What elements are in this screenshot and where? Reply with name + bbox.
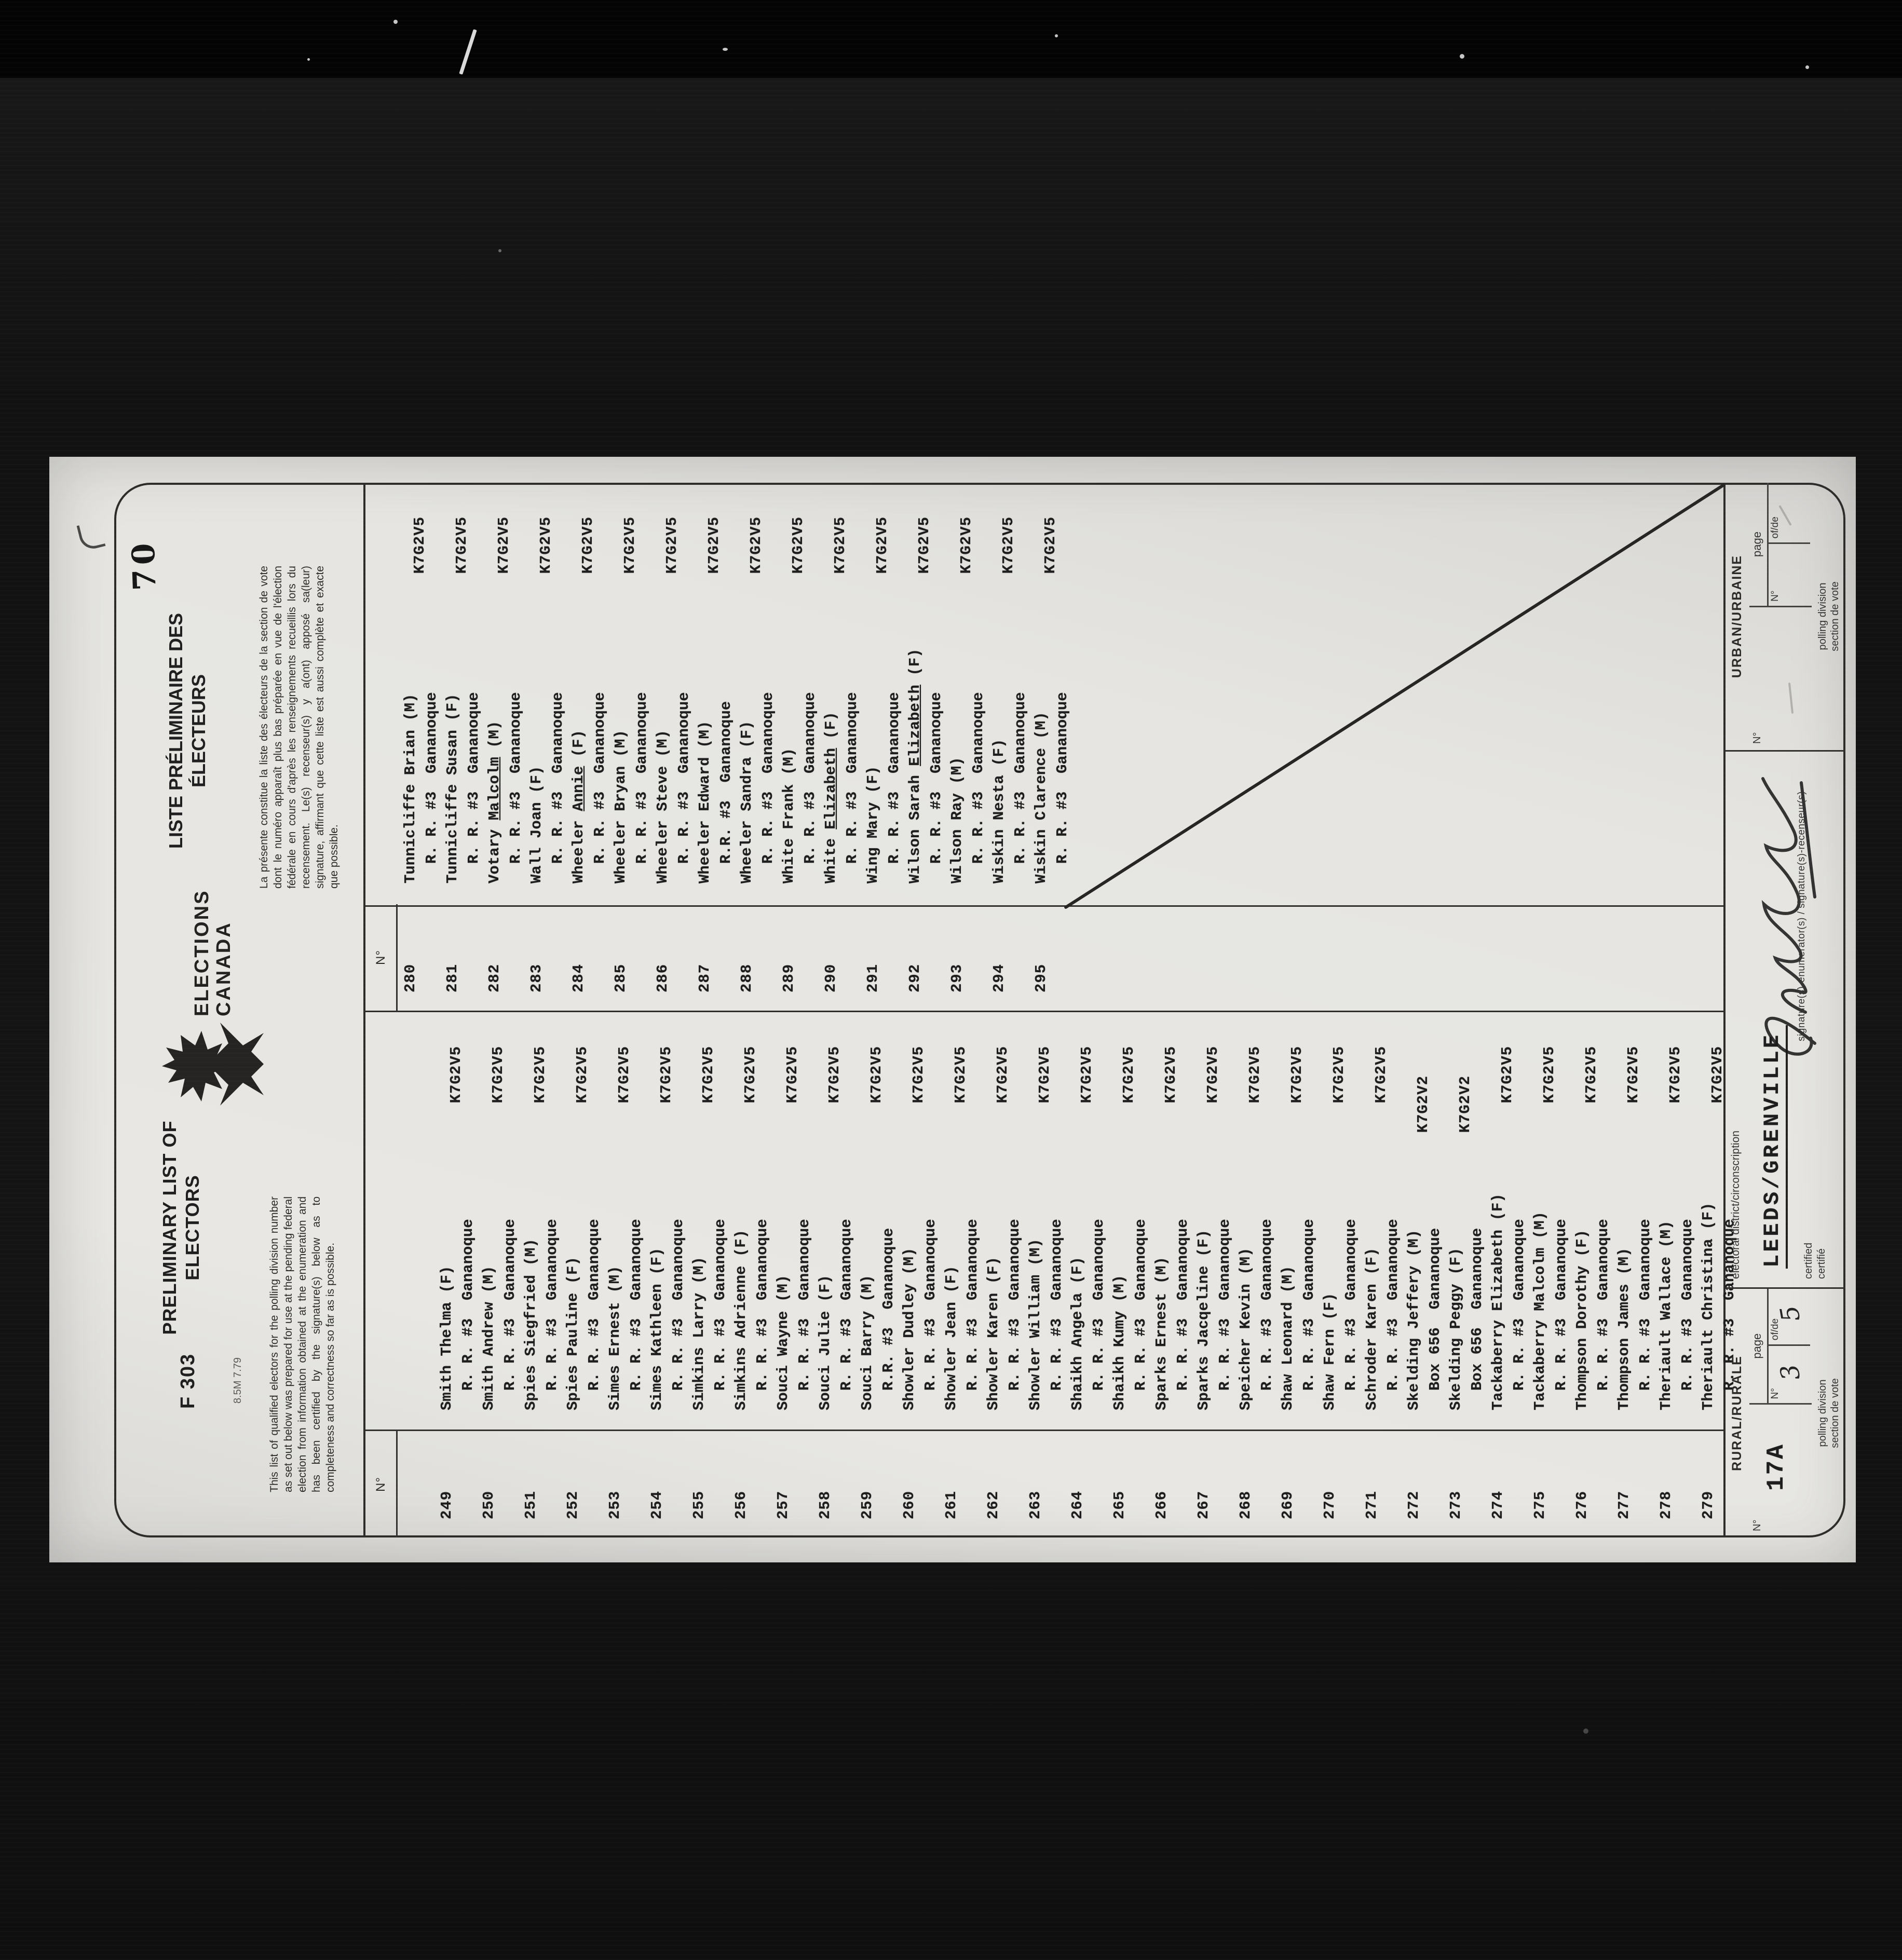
film-speck	[723, 48, 728, 51]
elector-postal-code: K7G2V5	[495, 516, 512, 574]
elector-postal-code: K7G2V5	[1583, 1046, 1600, 1103]
elector-row: 259Souci Barry (M)R.R. #3 GananoqueK7G2V…	[859, 1012, 901, 1537]
elector-number: 281	[444, 964, 461, 992]
elector-postal-code: K7G2V5	[1373, 1046, 1390, 1103]
elector-name: Schroder Karen (F)	[1363, 1248, 1380, 1410]
elector-name: Theriault Wallace (M)	[1658, 1221, 1675, 1410]
elector-postal-code: K7G2V5	[832, 516, 849, 574]
number-column-header: N°	[365, 1431, 398, 1537]
elector-number: 249	[438, 1491, 455, 1519]
rural-caption-line2: section de vote	[1829, 1378, 1841, 1448]
elector-name: Wiskin Clarence (M)	[1032, 712, 1050, 883]
elector-postal-code: K7G2V5	[1330, 1046, 1348, 1103]
elector-number: 289	[780, 964, 797, 992]
elector-address: R. R. #3 Gananoque	[712, 1219, 729, 1391]
elector-row: 284Wheeler Annie (F)R. R. #3 GananoqueK7…	[570, 483, 612, 1011]
rural-page-no-label: N°	[1770, 1388, 1781, 1399]
elector-address: R. R. #3 Gananoque	[1511, 1219, 1528, 1391]
elector-address: R. R. #3 Gananoque	[1006, 1219, 1023, 1391]
elector-name: Speicher Kevin (M)	[1237, 1248, 1254, 1410]
elector-number: 251	[522, 1491, 539, 1519]
rural-no-label: N°	[1751, 1520, 1763, 1531]
rural-caption-line1: polling division	[1817, 1379, 1828, 1447]
elector-number: 275	[1531, 1491, 1548, 1519]
elector-address: R. R. #3 Gananoque	[759, 692, 777, 864]
elector-name: Showler Karen (F)	[985, 1257, 1002, 1410]
elector-name: Wheeler Annie (F)	[570, 730, 587, 883]
certification-paragraph-french: La présente constitue la liste des élect…	[257, 566, 341, 889]
elector-name: Thompson James (M)	[1615, 1248, 1633, 1410]
elector-row: 267Sparks Jacqeline (F)R. R. #3 Gananoqu…	[1195, 1012, 1237, 1537]
certified-label: certified certifié	[1802, 1243, 1828, 1279]
elector-address: R. R. #3 Gananoque	[1258, 1219, 1275, 1391]
elector-postal-code: K7G2V5	[994, 1046, 1011, 1103]
certified-line1: certified	[1803, 1243, 1814, 1279]
elector-postal-code: K7G2V5	[1120, 1046, 1137, 1103]
elector-address: R. R. #3 Gananoque	[754, 1219, 771, 1391]
form-print-code: 8.5M 7.79	[232, 1357, 244, 1404]
rural-page-cell: page N° 3 of/de 5	[1749, 1289, 1812, 1403]
rural-page-label: page	[1749, 1289, 1769, 1403]
elector-number: 260	[901, 1491, 918, 1519]
elector-number: 253	[606, 1491, 623, 1519]
elector-name: Tunnicliffe Susan (F)	[444, 694, 461, 883]
enumerator-signature	[1733, 768, 1842, 1069]
elector-name: Wheeler Steve (M)	[654, 730, 671, 883]
blank-space-crossout-line	[1064, 483, 1726, 909]
elector-name: Wheeler Sandra (F)	[738, 721, 755, 883]
elector-row: 272Skelding Jeffery (M)Box 656 Gananoque…	[1405, 1012, 1447, 1537]
elector-address: R. R. #3 Gananoque	[544, 1219, 561, 1391]
urban-page-label: page	[1749, 483, 1769, 606]
film-speck	[1055, 34, 1058, 37]
elector-postal-code: K7G2V5	[705, 516, 723, 574]
elector-name: Showler William (M)	[1027, 1238, 1044, 1410]
rural-page-subcells: N° 3 of/de 5	[1769, 1289, 1810, 1403]
elector-number: 278	[1658, 1491, 1675, 1519]
elector-number: 264	[1069, 1491, 1086, 1519]
elector-address: R. R. #3 Gananoque	[928, 692, 945, 864]
title-french-line1: LISTE PRÉLIMINAIRE DES	[165, 613, 186, 849]
elector-postal-code: K7G2V5	[579, 516, 596, 574]
elector-address: R. R. #3 Gananoque	[1012, 692, 1029, 864]
elector-number: 283	[528, 964, 545, 992]
elector-number: 270	[1321, 1491, 1338, 1519]
elector-postal-code: K7G2V5	[532, 1046, 549, 1103]
page-number-stamp: 70	[125, 538, 163, 591]
elector-postal-code: K7G2V5	[1499, 1046, 1516, 1103]
elector-address: R. R. #3 Gananoque	[1595, 1219, 1612, 1391]
rural-polling-number-value: 17A	[1763, 1443, 1790, 1491]
elector-row: 271Schroder Karen (F)R. R. #3 GananoqueK…	[1363, 1012, 1405, 1537]
elector-address: R. R. #3 Gananoque	[1174, 1219, 1191, 1391]
rural-page-of-handwritten: 5	[1775, 1303, 1806, 1324]
elector-postal-code: K7G2V5	[1078, 1046, 1095, 1103]
elector-postal-code: K7G2V5	[621, 516, 638, 574]
elector-address: R. R. #3 Gananoque	[1553, 1219, 1570, 1391]
elector-name: Tackaberry Malcolm (M)	[1531, 1212, 1548, 1410]
urban-of-label: of/de	[1770, 516, 1781, 538]
elector-name: Theriault Christina (F)	[1700, 1203, 1717, 1410]
elector-name: Simkins Adrienne (F)	[732, 1230, 750, 1410]
logo-wordmark: ELECTIONS CANADA	[191, 890, 235, 1016]
elector-row: 264Shaikh Angela (F)R. R. #3 GananoqueK7…	[1069, 1012, 1111, 1537]
elector-address: R. R. #3 Gananoque	[1342, 1219, 1360, 1391]
elector-row: 280Tunnicliffe Brian (M)R. R. #3 Gananoq…	[402, 483, 444, 1011]
number-column-header: N°	[365, 904, 398, 1011]
elector-row: 262Showler Karen (F)R. R. #3 GananoqueK7…	[985, 1012, 1027, 1537]
pen-mark	[76, 520, 105, 551]
film-speck	[393, 20, 398, 24]
elector-name: Spies Pauline (F)	[564, 1257, 581, 1410]
elector-row: 250Smith Andrew (M)R. R. #3 GananoqueK7G…	[480, 1012, 522, 1537]
elector-name: Votary Malcolm (M)	[486, 721, 503, 883]
elector-number: 268	[1237, 1491, 1254, 1519]
elector-postal-code: K7G2V5	[874, 516, 891, 574]
elector-name: Wiskin Nesta (F)	[990, 739, 1008, 883]
elector-postal-code: K7G2V5	[868, 1046, 885, 1103]
elector-name: Simes Ernest (M)	[606, 1266, 623, 1410]
elector-postal-code: K7G2V5	[447, 1046, 465, 1103]
elector-row: 249Smith Thelma (F)R. R. #3 GananoqueK7G…	[438, 1012, 480, 1537]
elector-row: 269Shaw Leonard (M)R. R. #3 GananoqueK7G…	[1279, 1012, 1321, 1537]
logo-line2: CANADA	[213, 921, 235, 1016]
elector-number: 294	[990, 964, 1008, 992]
elector-row: 291Wing Mary (F)R. R. #3 GananoqueK7G2V5	[864, 483, 906, 1011]
elector-address: R. R. #3 Gananoque	[628, 1219, 645, 1391]
film-speck	[1460, 54, 1464, 59]
elector-number: 271	[1363, 1491, 1380, 1519]
elector-postal-code: K7G2V5	[1541, 1046, 1558, 1103]
elector-number: 282	[486, 964, 503, 992]
elector-number: 256	[732, 1491, 750, 1519]
elector-postal-code: K7G2V5	[537, 516, 554, 574]
urban-page-subcells: N° of/de	[1769, 483, 1810, 606]
elector-number: 261	[943, 1491, 960, 1519]
elector-number: 290	[822, 964, 839, 992]
elector-postal-code: K7G2V5	[790, 516, 807, 574]
elector-number: 287	[696, 964, 713, 992]
electors-column-right: N° 280Tunnicliffe Brian (M)R. R. #3 Gana…	[365, 483, 1723, 1012]
elector-number: 257	[775, 1491, 792, 1519]
film-top-band	[0, 0, 1902, 78]
elector-row: 282Votary Malcolm (M)R. R. #3 GananoqueK…	[486, 483, 528, 1011]
elector-address: R. R. #3 Gananoque	[591, 692, 608, 864]
elector-address: R. R. #3 Gananoque	[796, 1219, 813, 1391]
elector-postal-code: K7G2V5	[952, 1046, 969, 1103]
elector-number: 269	[1279, 1491, 1296, 1519]
elector-postal-code: K7G2V5	[1000, 516, 1017, 574]
elector-address: R. R. #3 Gananoque	[964, 1219, 981, 1391]
elector-address: R. R. #3 Gananoque	[423, 692, 440, 864]
elector-address: R. R. #3 Gananoque	[459, 1219, 477, 1391]
elector-postal-code: K7G2V5	[1036, 1046, 1053, 1103]
elector-name: Sparks Ernest (M)	[1153, 1257, 1170, 1410]
elector-postal-code: K7G2V5	[1709, 1046, 1726, 1103]
elector-postal-code: K7G2V5	[916, 516, 933, 574]
elector-number: 267	[1195, 1491, 1212, 1519]
electoral-district-label: electoral district/circonscription	[1730, 1131, 1742, 1279]
elector-row: 252Spies Pauline (F)R. R. #3 GananoqueK7…	[564, 1012, 606, 1537]
elector-postal-code: K7G2V5	[910, 1046, 927, 1103]
urban-title: URBAN/URBAINE	[1730, 483, 1745, 750]
elector-number: 266	[1153, 1491, 1170, 1519]
urban-no-label: N°	[1751, 732, 1763, 744]
elector-row: 251Spies Siegfried (M)R. R. #3 Gananoque…	[522, 1012, 564, 1537]
elector-postal-code: K7G2V5	[748, 516, 765, 574]
elector-postal-code: K7G2V5	[663, 516, 681, 574]
elector-name: Smith Thelma (F)	[438, 1266, 455, 1410]
elector-row: 261Showler Jean (F)R. R. #3 GananoqueK7G…	[943, 1012, 985, 1537]
elector-name: Thompson Dorothy (F)	[1573, 1230, 1591, 1410]
urban-polling-number-cell: N°	[1749, 606, 1812, 750]
elector-row: 255Simkins Larry (M)R. R. #3 GananoqueK7…	[690, 1012, 732, 1537]
elector-postal-code: K7G2V5	[784, 1046, 801, 1103]
elector-name: Wall Joan (F)	[528, 766, 545, 883]
elector-address: R. R. #3 Gananoque	[549, 692, 566, 864]
elector-postal-code: K7G2V5	[700, 1046, 717, 1103]
elector-address: R. R. #3 Gananoque	[1048, 1219, 1065, 1391]
elector-row: 292Wilson Sarah Elizabeth (F)R. R. #3 Ga…	[906, 483, 948, 1011]
elector-name: Spies Siegfried (M)	[522, 1238, 539, 1410]
urban-page-no-label: N°	[1770, 591, 1781, 602]
elector-postal-code: K7G2V5	[490, 1046, 507, 1103]
elector-postal-code: K7G2V5	[1162, 1046, 1179, 1103]
district-and-signature-box: electoral district/circonscription LEEDS…	[1726, 752, 1845, 1287]
film-speck	[498, 249, 501, 252]
elector-number: 280	[402, 964, 419, 992]
elector-row: 273Skelding Peggy (F)Box 656 GananoqueK7…	[1447, 1012, 1489, 1537]
elector-number: 276	[1573, 1491, 1591, 1519]
rural-page-no-handwritten: 3	[1775, 1362, 1806, 1383]
scanned-document-page: 70 F 303 PRELIMINARY LIST OF ELECTORS 8.…	[49, 457, 1856, 1562]
title-english-line2: ELECTORS	[182, 1175, 203, 1280]
elector-row: 286Wheeler Steve (M)R. R. #3 GananoqueK7…	[654, 483, 696, 1011]
elector-address: R. R. #3 Gananoque	[1090, 1219, 1107, 1391]
rural-page-no-cell: N° 3	[1769, 1346, 1810, 1403]
elector-row: 274Tackaberry Elizabeth (F)R. R. #3 Gana…	[1489, 1012, 1531, 1537]
rural-page-of-cell: of/de 5	[1769, 1289, 1810, 1346]
elector-address: R. R. #3 Gananoque	[922, 1219, 939, 1391]
elector-number: 265	[1111, 1491, 1128, 1519]
elector-name: Skelding Peggy (F)	[1447, 1248, 1464, 1410]
elector-number: 252	[564, 1491, 581, 1519]
elector-address: R. R. #3 Gananoque	[670, 1219, 687, 1391]
elector-address: R. R. #3 Gananoque	[838, 1219, 855, 1391]
elector-row: 295Wiskin Clarence (M)R. R. #3 Gananoque…	[1032, 483, 1075, 1011]
elector-postal-code: K7G2V5	[1204, 1046, 1221, 1103]
elector-name: Shaw Fern (F)	[1321, 1293, 1338, 1410]
elector-name: Showler Dudley (M)	[901, 1248, 918, 1410]
rural-caption: polling division section de vote	[1816, 1289, 1841, 1537]
elector-number: 254	[648, 1491, 665, 1519]
elector-row: 294Wiskin Nesta (F)R. R. #3 GananoqueK7G…	[990, 483, 1032, 1011]
elector-row: 263Showler William (M)R. R. #3 Gananoque…	[1027, 1012, 1069, 1537]
form-footer: RURAL/RURALE N° 17A page N° 3	[1726, 483, 1845, 1537]
elector-postal-code: K7G2V5	[574, 1046, 591, 1103]
elector-name: Wilson Ray (M)	[948, 757, 966, 883]
elector-name: White Elizabeth (F)	[822, 712, 839, 883]
elector-row: 268Speicher Kevin (M)R. R. #3 GananoqueK…	[1237, 1012, 1279, 1537]
elector-row: 293Wilson Ray (M)R. R. #3 GananoqueK7G2V…	[948, 483, 990, 1011]
elector-number: 258	[817, 1491, 834, 1519]
rural-title: RURAL/RURALE	[1730, 1289, 1745, 1537]
elector-number: 292	[906, 964, 923, 992]
elector-address: R. R. #3 Gananoque	[501, 1219, 519, 1391]
film-speck	[1583, 1728, 1588, 1734]
elector-name: Souci Barry (M)	[859, 1275, 876, 1410]
elections-canada-logo: ELECTIONS CANADA	[156, 890, 270, 1118]
elector-row: 277Thompson James (M)R. R. #3 GananoqueK…	[1615, 1012, 1658, 1537]
elector-name: Shaikh Kumy (M)	[1111, 1275, 1128, 1410]
title-french-line2: ÉLECTEURS	[188, 674, 209, 787]
elector-number: 291	[864, 964, 881, 992]
urban-cells: N° page N° of/de	[1749, 483, 1812, 750]
elector-name: Smith Andrew (M)	[480, 1266, 497, 1410]
elector-name: Souci Wayne (M)	[775, 1275, 792, 1410]
elector-postal-code: K7G2V5	[616, 1046, 633, 1103]
elector-name: Skelding Jeffery (M)	[1405, 1230, 1422, 1410]
elector-postal-code: K7G2V5	[1246, 1046, 1264, 1103]
maple-leaf-ballot-icon	[156, 1019, 270, 1118]
form-number: F 303	[177, 1353, 199, 1409]
elector-row: 258Souci Julie (F)R. R. #3 GananoqueK7G2…	[817, 1012, 859, 1537]
elector-number: 272	[1405, 1491, 1422, 1519]
elector-row: 283Wall Joan (F)R. R. #3 GananoqueK7G2V5	[528, 483, 570, 1011]
elector-row: 270Shaw Fern (F)R. R. #3 GananoqueK7G2V5	[1321, 1012, 1363, 1537]
elector-postal-code: K7G2V5	[453, 516, 470, 574]
elector-number: 295	[1032, 964, 1050, 992]
title-english-line1: PRELIMINARY LIST OF	[159, 1121, 180, 1335]
elector-number: 273	[1447, 1491, 1464, 1519]
elector-number: 250	[480, 1491, 497, 1519]
elector-address: R. R. #3 Gananoque	[465, 692, 482, 864]
elector-number: 284	[570, 964, 587, 992]
pencil-mark	[1788, 683, 1794, 714]
elector-number: 277	[1615, 1491, 1633, 1519]
elector-number: 286	[654, 964, 671, 992]
elector-address: R. R. #3 Gananoque	[1384, 1219, 1402, 1391]
elector-address: R. R. #3 Gananoque	[1132, 1219, 1149, 1391]
elector-name: Shaikh Angela (F)	[1069, 1257, 1086, 1410]
elector-name: White Frank (M)	[780, 748, 797, 883]
elector-row: 287Wheeler Edward (M)R.R. #3 GananoqueK7…	[696, 483, 738, 1011]
electors-column-left: N° 249Smith Thelma (F)R. R. #3 Gananoque…	[365, 1012, 1723, 1537]
elector-row: 290White Elizabeth (F)R. R. #3 Gananoque…	[822, 483, 864, 1011]
urban-caption: polling division section de vote	[1816, 483, 1841, 750]
rural-cells: N° 17A page N° 3 of/de 5	[1749, 1289, 1812, 1537]
elector-row: 285Wheeler Bryan (M)R. R. #3 GananoqueK7…	[612, 483, 654, 1011]
elector-row: 256Simkins Adrienne (F)R. R. #3 Gananoqu…	[732, 1012, 775, 1537]
elector-address: R.R. #3 Gananoque	[880, 1228, 897, 1391]
elector-address: R. R. #3 Gananoque	[1637, 1219, 1654, 1391]
elector-postal-code: K7G2V5	[1042, 516, 1059, 574]
elector-postal-code: K7G2V5	[742, 1046, 759, 1103]
elector-row: 289White Frank (M)R. R. #3 GananoqueK7G2…	[780, 483, 822, 1011]
elector-row: 281Tunnicliffe Susan (F)R. R. #3 Gananoq…	[444, 483, 486, 1011]
elector-number: 255	[690, 1491, 708, 1519]
elector-name: Tackaberry Elizabeth (F)	[1489, 1193, 1506, 1410]
elector-name: Sparks Jacqeline (F)	[1195, 1230, 1212, 1410]
elector-address: R. R. #3 Gananoque	[675, 692, 692, 864]
elector-row: 254Simes Kathleen (F)R. R. #3 GananoqueK…	[648, 1012, 690, 1537]
title-french: LISTE PRÉLIMINAIRE DES ÉLECTEURS	[165, 601, 210, 861]
elector-address: R. R. #3 Gananoque	[886, 692, 903, 864]
elector-address: R. R. #3 Gananoque	[1054, 692, 1071, 864]
elector-postal-code: K7G2V5	[658, 1046, 675, 1103]
elector-address: Box 656 Gananoque	[1469, 1228, 1486, 1391]
microfilm-frame: 70 F 303 PRELIMINARY LIST OF ELECTORS 8.…	[0, 0, 1902, 1960]
film-speck	[307, 58, 310, 61]
elector-number: 279	[1700, 1491, 1717, 1519]
elector-postal-code: K7G2V5	[958, 516, 975, 574]
urban-page-cell: page N° of/de	[1749, 483, 1812, 606]
elector-name: Simes Kathleen (F)	[648, 1248, 665, 1410]
elector-number: 288	[738, 964, 755, 992]
elector-address: R. R. #3 Gananoque	[1216, 1219, 1233, 1391]
urban-page-of-cell: of/de	[1769, 483, 1810, 544]
elector-name: Souci Julie (F)	[817, 1275, 834, 1410]
elector-postal-code: K7G2V5	[1625, 1046, 1642, 1103]
elector-postal-code: K7G2V5	[1667, 1046, 1684, 1103]
certified-line2: certifié	[1816, 1248, 1827, 1279]
elector-row: 260Showler Dudley (M)R. R. #3 GananoqueK…	[901, 1012, 943, 1537]
rural-polling-number-cell: N° 17A	[1749, 1403, 1812, 1537]
elector-row: 278Theriault Wallace (M)R. R. #3 Gananoq…	[1658, 1012, 1700, 1537]
film-speck	[1805, 65, 1809, 69]
elector-number: 259	[859, 1491, 876, 1519]
elector-row: 288Wheeler Sandra (F)R. R. #3 GananoqueK…	[738, 483, 780, 1011]
elector-address: Box 656 Gananoque	[1426, 1228, 1444, 1391]
rural-box: RURAL/RURALE N° 17A page N° 3	[1726, 1287, 1845, 1537]
elector-name: Wheeler Bryan (M)	[612, 730, 629, 883]
elector-row: 275Tackaberry Malcolm (M)R. R. #3 Ganano…	[1531, 1012, 1573, 1537]
electors-list: N° 249Smith Thelma (F)R. R. #3 Gananoque…	[363, 483, 1726, 1537]
elector-postal-code: K7G2V5	[1288, 1046, 1306, 1103]
elector-address: R. R. #3 Gananoque	[801, 692, 819, 864]
elector-address: R. R. #3 Gananoque	[844, 692, 861, 864]
elector-name: Showler Jean (F)	[943, 1266, 960, 1410]
urban-caption-line2: section de vote	[1829, 581, 1841, 651]
elector-row: 265Shaikh Kumy (M)R. R. #3 GananoqueK7G2…	[1111, 1012, 1153, 1537]
certification-paragraph-english: This list of qualified electors for the …	[267, 1196, 337, 1492]
elector-name: Tunnicliffe Brian (M)	[402, 694, 419, 883]
urban-caption-line1: polling division	[1817, 582, 1828, 650]
elector-address: R. R. #3 Gananoque	[1300, 1219, 1317, 1391]
elector-name: Shaw Leonard (M)	[1279, 1266, 1296, 1410]
elector-address: R. R. #3 Gananoque	[970, 692, 987, 864]
elector-name: Simkins Larry (M)	[690, 1257, 708, 1410]
elector-name: Wilson Sarah Elizabeth (F)	[906, 648, 923, 883]
elector-row: 253Simes Ernest (M)R. R. #3 GananoqueK7G…	[606, 1012, 648, 1537]
elector-name: Wheeler Edward (M)	[696, 721, 713, 883]
urban-box: URBAN/URBAINE N° page N°	[1726, 483, 1845, 752]
elector-number: 293	[948, 964, 966, 992]
elector-address: R. R. #3 Gananoque	[633, 692, 650, 864]
elector-row: 257Souci Wayne (M)R. R. #3 GananoqueK7G2…	[775, 1012, 817, 1537]
elector-postal-code: K7G2V2	[1415, 1076, 1432, 1133]
elector-address: R. R. #3 Gananoque	[586, 1219, 603, 1391]
elector-number: 274	[1489, 1491, 1506, 1519]
elector-number: 263	[1027, 1491, 1044, 1519]
signature-label: signature(s)-enumerator(s) / signature(s…	[1796, 791, 1808, 1041]
elector-postal-code: K7G2V2	[1457, 1076, 1474, 1133]
elector-postal-code: K7G2V5	[826, 1046, 843, 1103]
title-english: PRELIMINARY LIST OF ELECTORS	[158, 1116, 204, 1339]
elector-address: R. R. #3 Gananoque	[507, 692, 524, 864]
elector-row: 276Thompson Dorothy (F)R. R. #3 Gananoqu…	[1573, 1012, 1615, 1537]
elector-postal-code: K7G2V5	[411, 516, 428, 574]
